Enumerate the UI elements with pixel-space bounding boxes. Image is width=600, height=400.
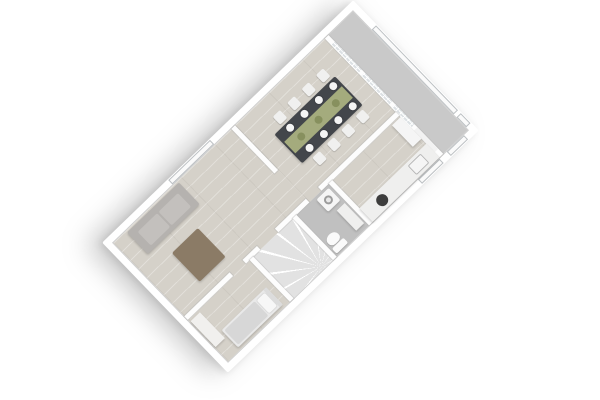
washing-machine-door: [322, 194, 335, 207]
floorplan-rotated-wrapper: [102, 0, 479, 373]
building-outline: [102, 0, 479, 373]
floorplan-canvas: [0, 0, 600, 400]
